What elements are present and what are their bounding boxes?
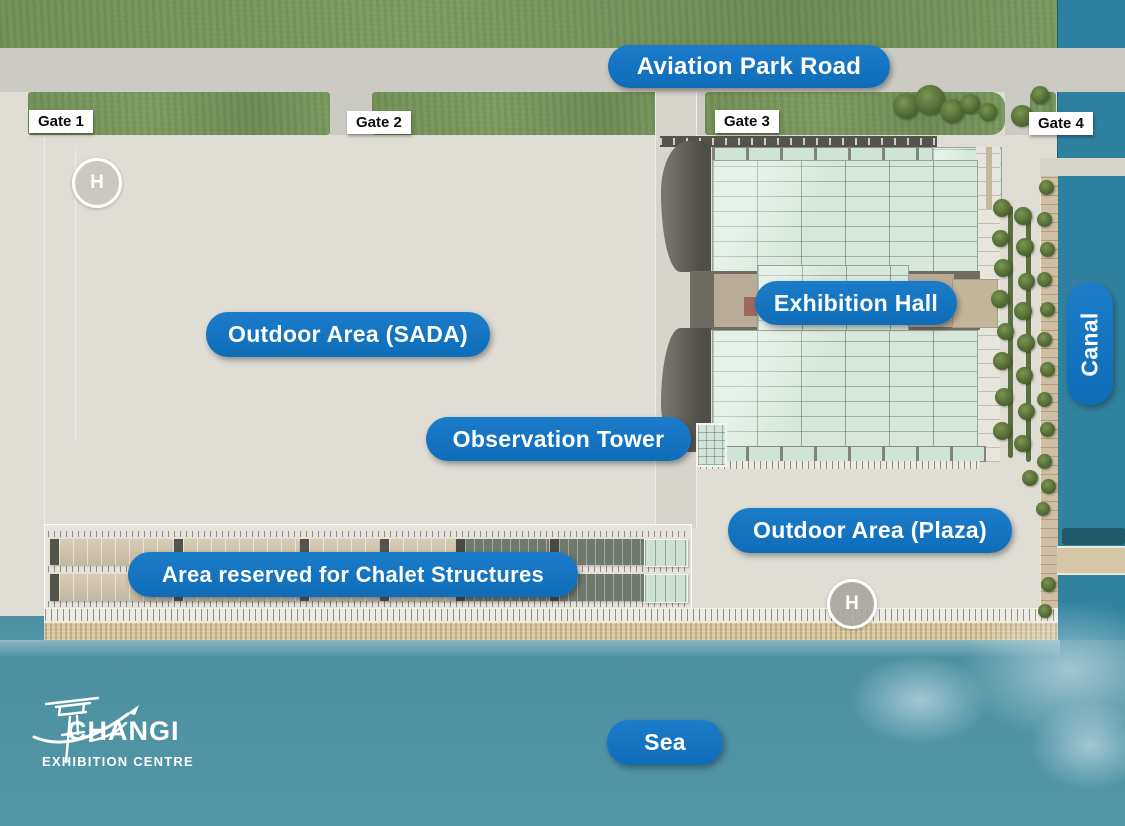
gate-1-label: Gate 1 bbox=[29, 110, 93, 133]
hall-east-wall bbox=[986, 147, 992, 209]
observation-tower-structure bbox=[696, 423, 727, 467]
hall-south-edge bbox=[700, 461, 980, 469]
aviation-park-road-label: Aviation Park Road bbox=[608, 45, 890, 88]
tree-icon bbox=[1040, 362, 1055, 377]
chalet-block bbox=[644, 539, 688, 567]
tree-icon bbox=[1037, 332, 1052, 347]
tree-icon bbox=[979, 103, 997, 121]
tree-icon bbox=[1016, 238, 1034, 256]
tree-icon bbox=[1041, 577, 1056, 592]
tree-icon bbox=[997, 323, 1014, 340]
helipad-letter: H bbox=[845, 593, 859, 615]
logo-subtitle: EXHIBITION CENTRE bbox=[42, 754, 194, 769]
tree-icon bbox=[991, 290, 1009, 308]
gate4-canal-crossing bbox=[1040, 158, 1125, 176]
outdoor-area-sada-label: Outdoor Area (SADA) bbox=[206, 312, 490, 357]
tree-icon bbox=[1018, 403, 1035, 420]
hall-link-east-bridge bbox=[952, 279, 998, 328]
canal-label: Canal bbox=[1067, 283, 1113, 405]
tree-icon bbox=[1037, 392, 1052, 407]
chalet-block bbox=[644, 574, 688, 603]
tree-icon bbox=[960, 94, 980, 114]
chalet-area-label: Area reserved for Chalet Structures bbox=[128, 552, 578, 597]
tree-icon bbox=[993, 352, 1011, 370]
tree-icon bbox=[1018, 273, 1035, 290]
tree-icon bbox=[993, 422, 1011, 440]
helipad-west: H bbox=[72, 158, 122, 208]
tree-icon bbox=[1040, 302, 1055, 317]
tree-icon bbox=[992, 230, 1009, 247]
tree-icon bbox=[1014, 302, 1032, 320]
exhibition-hall-label: Exhibition Hall bbox=[755, 281, 957, 325]
tree-icon bbox=[1041, 479, 1056, 494]
exhibition-hall-south-roof bbox=[712, 330, 978, 448]
sea-label: Sea bbox=[607, 720, 723, 765]
aviation-park-road-surface bbox=[0, 48, 1125, 92]
chalet-fence-1 bbox=[48, 531, 688, 537]
hall-north-west-wing bbox=[661, 141, 711, 272]
tree-icon bbox=[995, 388, 1013, 406]
gate-2-label: Gate 2 bbox=[347, 111, 411, 134]
exhibition-hall-north-roof bbox=[712, 160, 978, 273]
chalet-fence-3 bbox=[48, 601, 688, 607]
tree-icon bbox=[1039, 180, 1054, 195]
site-map: H H Gate 1 Gate 2 Gate 3 Gate 4 Aviation… bbox=[0, 0, 1125, 826]
tree-icon bbox=[1031, 86, 1049, 104]
tree-icon bbox=[1037, 212, 1052, 227]
tree-icon bbox=[1037, 454, 1052, 469]
canal-pier bbox=[1057, 546, 1125, 575]
tree-icon bbox=[1022, 470, 1038, 486]
sea-left-notch bbox=[0, 616, 44, 642]
tree-icon bbox=[1040, 422, 1055, 437]
changi-exhibition-centre-logo: CHANGI EXHIBITION CENTRE bbox=[28, 688, 268, 788]
tree-icon bbox=[1037, 272, 1052, 287]
tree-icon bbox=[993, 199, 1011, 217]
grass-north bbox=[0, 0, 1057, 48]
canal-label-text: Canal bbox=[1077, 312, 1104, 376]
observation-tower-label: Observation Tower bbox=[426, 417, 691, 461]
gate-3-label: Gate 3 bbox=[715, 110, 779, 133]
shallow-patch-2 bbox=[850, 655, 990, 745]
helipad-plaza: H bbox=[827, 579, 877, 629]
verge-gate2 bbox=[372, 92, 680, 135]
helipad-letter: H bbox=[90, 172, 104, 194]
tree-icon bbox=[1014, 435, 1031, 452]
tree-icon bbox=[1036, 502, 1050, 516]
tree-icon bbox=[1017, 334, 1035, 352]
canal-boat bbox=[1062, 528, 1125, 545]
shallow-patch-3 bbox=[1030, 700, 1125, 790]
hall-south-skylights bbox=[712, 446, 986, 462]
west-boundary-line bbox=[44, 135, 45, 527]
tree-icon bbox=[1014, 207, 1032, 225]
tree-icon bbox=[1040, 242, 1055, 257]
gate-4-label: Gate 4 bbox=[1029, 112, 1093, 135]
tree-icon bbox=[994, 259, 1012, 277]
logo-title: CHANGI bbox=[67, 716, 180, 747]
tree-icon bbox=[1016, 367, 1033, 384]
tree-icon bbox=[1038, 604, 1052, 618]
outdoor-area-plaza-label: Outdoor Area (Plaza) bbox=[728, 508, 1012, 553]
